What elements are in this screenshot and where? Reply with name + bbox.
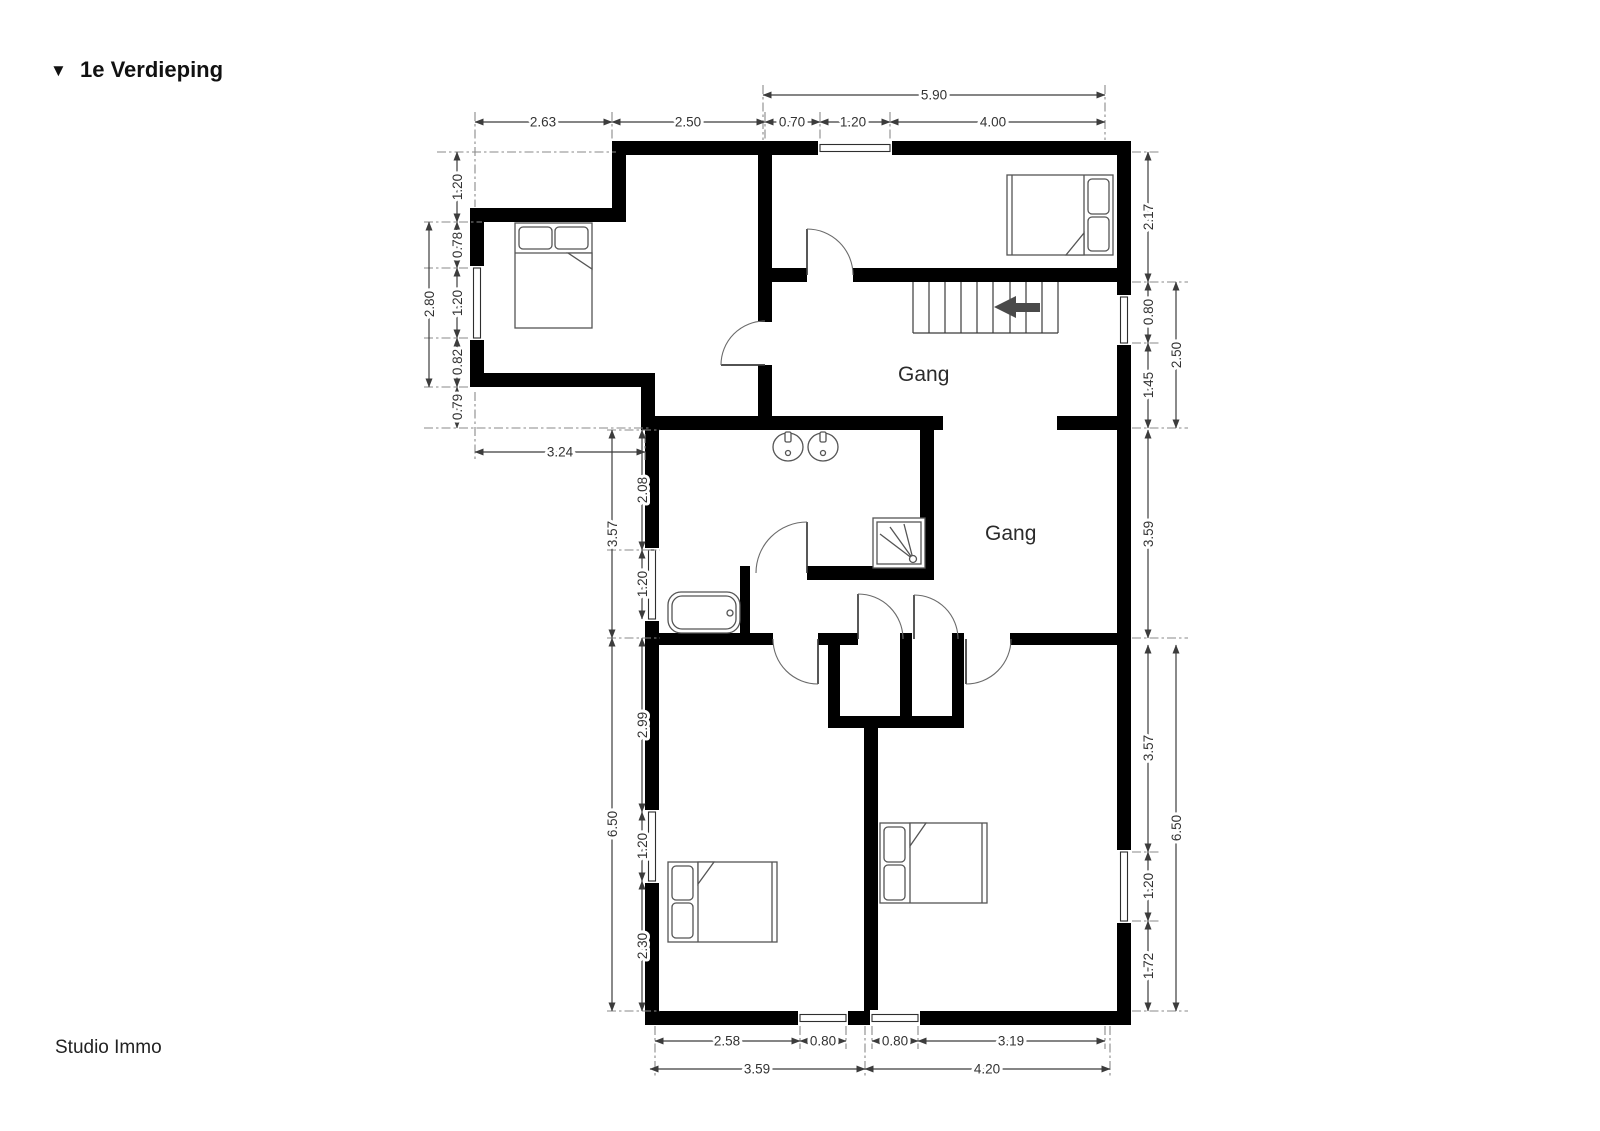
stair-direction-arrow-icon [994,296,1040,318]
staircase [913,282,1058,333]
sink-right [808,432,838,461]
bed-bottom-left [668,862,777,942]
title-triangle-icon: ▼ [50,61,67,80]
dim-label: 0.70 [779,115,805,130]
dim-label: 6.50 [605,811,620,837]
dim-label: 2.80 [422,291,437,317]
dim-label: 0.80 [882,1034,908,1049]
dim-label: 3.24 [547,445,574,460]
floorplan-page: 5.90 2.63 2.50 0.70 1.20 4.00 3.24 2.58 … [0,0,1600,1131]
dim-label: 3.59 [1141,521,1156,547]
door-bedroom-bottom-left [773,639,818,684]
dim-label: 4.20 [974,1062,1000,1077]
room-label-hall-upper: Gang [898,363,949,386]
dim-label: 2.50 [1169,342,1184,368]
window-top [818,140,892,156]
dim-label: 3.57 [1141,735,1156,761]
door-closet-left [858,594,903,639]
dim-label: 1.20 [450,290,465,316]
window-left-upper [469,266,485,340]
window-bottom-right [870,1010,920,1026]
dim-label: 4.00 [980,115,1006,130]
room-label-hall-lower: Gang [985,522,1036,545]
dim-label: 3.59 [744,1062,770,1077]
dim-label: 3.57 [605,521,620,547]
dim-label: 5.90 [921,88,947,103]
bed-bottom-right [880,823,987,903]
dim-label: 0.80 [1141,299,1156,325]
dim-label: 2.50 [675,115,701,130]
bed-top-right [1007,175,1113,255]
dim-label: 0.80 [810,1034,836,1049]
dim-label: 1.45 [1141,372,1156,398]
door-bathroom [756,522,807,573]
dim-label: 0.82 [450,349,465,375]
dim-label: 2.30 [635,933,650,959]
sink-left [773,432,803,461]
dim-label: 2.63 [530,115,556,130]
dim-label: 2.99 [635,712,650,738]
dim-label: 1.20 [450,174,465,200]
dim-label: 6.50 [1169,815,1184,841]
floorplan-drawing: 5.90 2.63 2.50 0.70 1.20 4.00 3.24 2.58 … [0,0,1600,1131]
page-title: 1e Verdieping [80,57,223,82]
dim-label: 1.20 [840,115,866,130]
dim-label: 1.20 [1141,873,1156,899]
shower [873,518,925,568]
window-right-lower [1116,850,1132,923]
door-bedroom-top-right [807,229,853,275]
dim-label: 2.08 [635,477,650,503]
door-closet-right [914,595,958,639]
dim-label: 0.79 [450,394,465,420]
dim-label: 1.20 [635,571,650,597]
dim-label: 2.17 [1141,204,1156,230]
bathtub [668,592,740,633]
dim-label: 2.58 [714,1034,740,1049]
dim-label: 1.72 [1141,953,1156,979]
window-right-upper [1116,295,1132,345]
door-bedroom-bottom-right [966,639,1011,684]
dim-label: 3.19 [998,1034,1024,1049]
dim-label: 1.20 [635,833,650,859]
window-bottom-left [798,1010,848,1026]
dim-label: 0.78 [450,232,465,258]
bed-top-left [515,223,592,328]
footer-brand: Studio Immo [55,1037,162,1058]
door-bedroom-top-left [721,321,765,365]
